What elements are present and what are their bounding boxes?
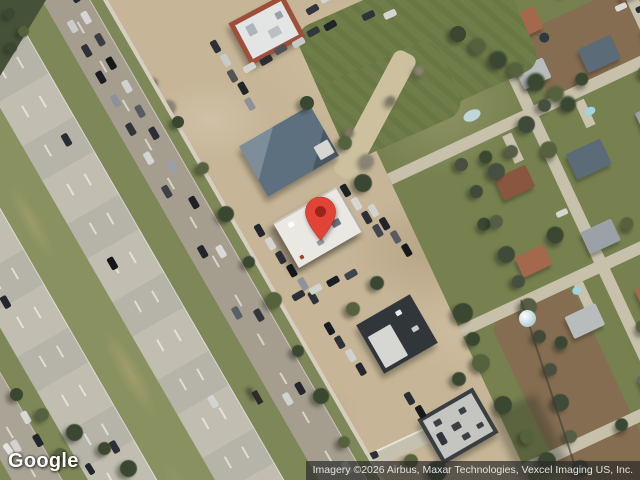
satellite-map[interactable]: Google Imagery ©2026 Airbus, Maxar Techn…: [0, 0, 640, 480]
roadside-trees: [172, 116, 184, 128]
imagery-attribution: Imagery ©2026 Airbus, Maxar Technologies…: [306, 461, 640, 480]
pin-dot: [315, 206, 326, 217]
trees: [4, 8, 15, 19]
google-logo[interactable]: Google: [8, 450, 79, 473]
pin-body: [306, 197, 336, 240]
trees: [10, 388, 23, 401]
map-pin[interactable]: [304, 196, 337, 241]
